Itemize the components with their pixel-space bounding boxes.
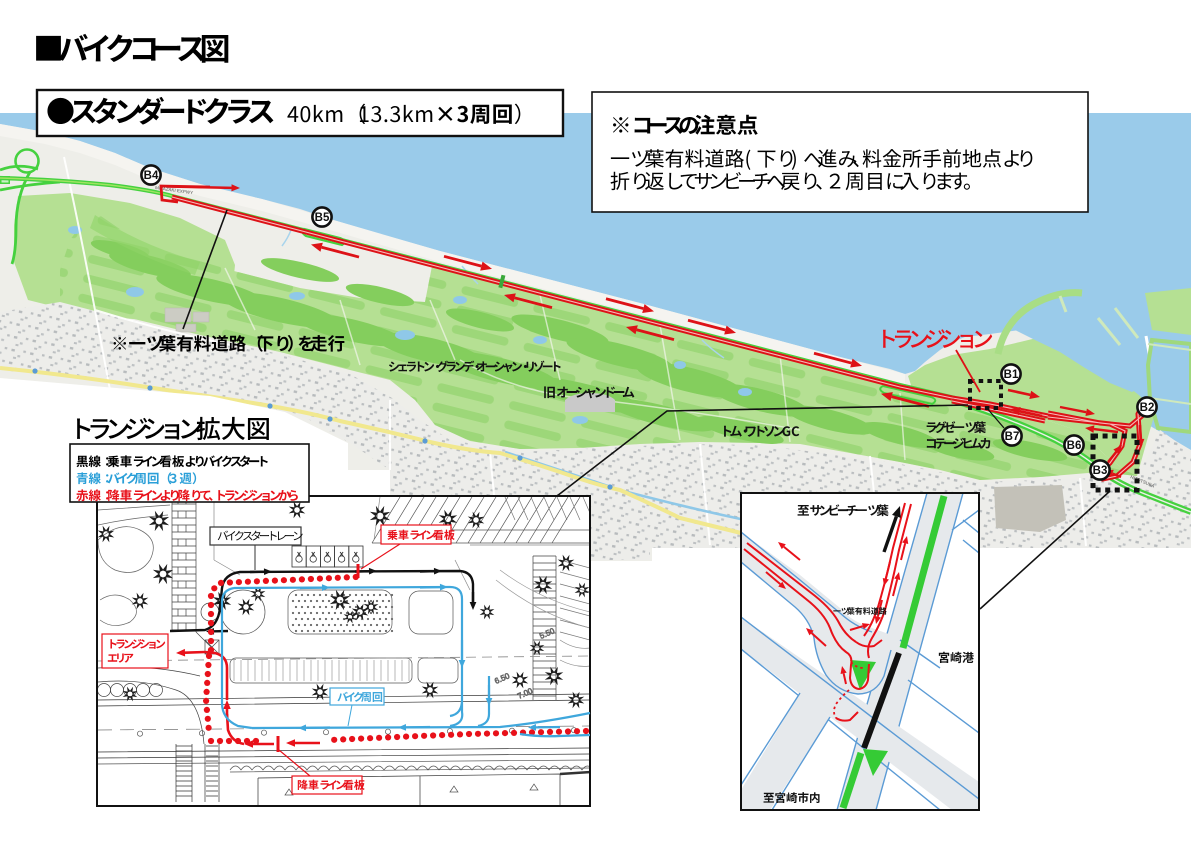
svg-text:B5: B5	[315, 212, 330, 224]
svg-text:B6: B6	[1067, 440, 1082, 452]
svg-text:B4: B4	[144, 170, 159, 182]
svg-text:B7: B7	[1005, 431, 1020, 443]
svg-text:B2: B2	[1140, 402, 1155, 414]
svg-text:B3: B3	[1093, 465, 1108, 477]
svg-text:B1: B1	[1004, 369, 1019, 381]
